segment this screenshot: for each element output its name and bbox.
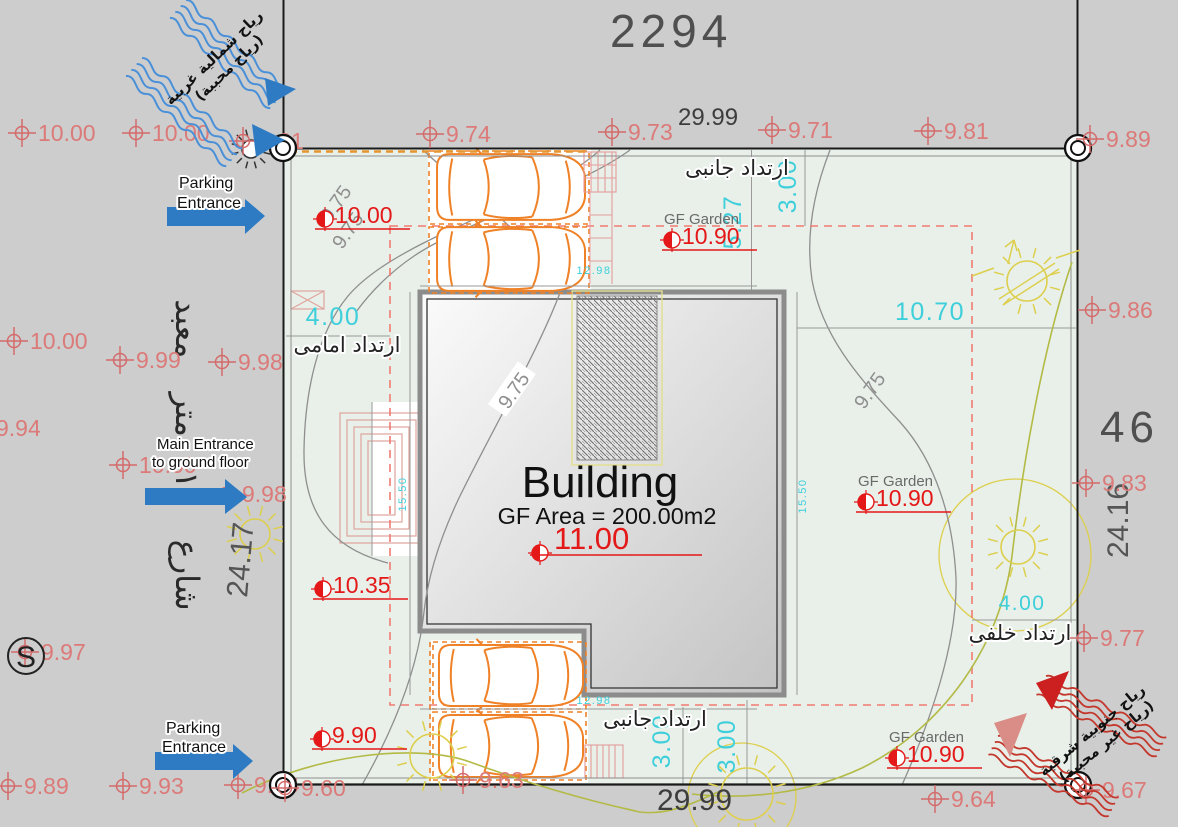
dimension-cyan: 12.98 xyxy=(576,695,611,707)
elevation-value: 9.83 xyxy=(1102,470,1147,496)
elevation-value: 9.89 xyxy=(1106,126,1151,152)
dimension-cyan: 4.00 xyxy=(306,303,361,331)
elevation-value: 9.73 xyxy=(628,119,673,145)
parking-entrance-bottom-label-1: Parking xyxy=(166,720,220,737)
elevation-value: 9.67 xyxy=(1102,777,1147,803)
elevation-value: 10.00 xyxy=(30,328,88,354)
dimension-cyan: 15.50 xyxy=(397,476,409,511)
dimension-cyan: 10.70 xyxy=(895,298,965,326)
elevation-value: 9.98 xyxy=(242,481,287,507)
parking-entrance-top-label-2: Entrance xyxy=(177,195,241,212)
setback-side-top-label: ارتداد جانبى xyxy=(685,156,789,180)
spot-level-value: 9.90 xyxy=(332,722,377,748)
elevation-value: 10.00 xyxy=(38,120,96,146)
site-plan-drawing: 5.273.0010.704.004.003.003.0015.5015.501… xyxy=(0,0,1178,827)
site-plan-page: 5.273.0010.704.004.003.003.0015.5015.501… xyxy=(0,0,1178,827)
parking-entrance-bottom-label-2: Entrance xyxy=(162,739,226,756)
garden-label: GF Garden xyxy=(889,729,964,746)
elevation-value: 9.77 xyxy=(1100,625,1145,651)
elevation-value: 9.60 xyxy=(301,775,346,801)
car-icon xyxy=(437,148,585,227)
elevation-value: 9.93 xyxy=(139,773,184,799)
spot-level-value: 10.35 xyxy=(333,572,391,598)
dim-bottom-frontage: 29.99 xyxy=(657,784,732,817)
elevation-value: 9.99 xyxy=(136,347,181,373)
setback-front-label: ارتداد امامى xyxy=(294,333,401,357)
elevation-value: 9.98 xyxy=(238,349,283,375)
spot-level-value: 10.00 xyxy=(335,202,393,228)
elevation-value: 9.74 xyxy=(446,121,491,147)
car-icon xyxy=(439,639,583,712)
dim-top-total: 2294 xyxy=(610,5,732,57)
main-entrance-label-2: to ground floor xyxy=(152,454,249,471)
dim-top-frontage: 29.99 xyxy=(678,104,738,131)
garden-label: GF Garden xyxy=(664,211,739,228)
dimension-cyan: 12.98 xyxy=(576,265,611,277)
elevation-marker: 9.94 xyxy=(0,414,41,442)
building-title: Building xyxy=(522,458,679,507)
elevation-value: 9.71 xyxy=(788,117,833,143)
elevation-value: 9.81 xyxy=(944,118,989,144)
main-entrance-label-1: Main Entrance xyxy=(157,436,254,453)
setback-side-bottom-label: ارتداد جانبى xyxy=(603,707,707,731)
hatched-void xyxy=(572,291,662,465)
parking-entrance-top-label-1: Parking xyxy=(179,175,233,192)
spot-level-value: 11.00 xyxy=(554,521,629,556)
elevation-value: 9.64 xyxy=(951,786,996,812)
dim-right-total: 46 xyxy=(1100,403,1159,452)
elevation-value: 9.89 xyxy=(24,773,69,799)
elevation-value: 9.86 xyxy=(1108,297,1153,323)
dimension-cyan: 4.00 xyxy=(999,592,1046,615)
dimension-cyan: 15.50 xyxy=(797,478,809,513)
setback-rear-label: ارتداد خلفى xyxy=(969,621,1072,645)
garden-label: GF Garden xyxy=(858,473,933,490)
benchmark-letter: S xyxy=(16,641,36,674)
dimension-cyan: 3.00 xyxy=(713,719,741,774)
dim-left-depth: 24.17 xyxy=(221,521,260,599)
elevation-value: 9.97 xyxy=(41,639,86,665)
elevation-value: 9.63 xyxy=(479,767,524,793)
elevation-value: 9.94 xyxy=(0,415,41,441)
